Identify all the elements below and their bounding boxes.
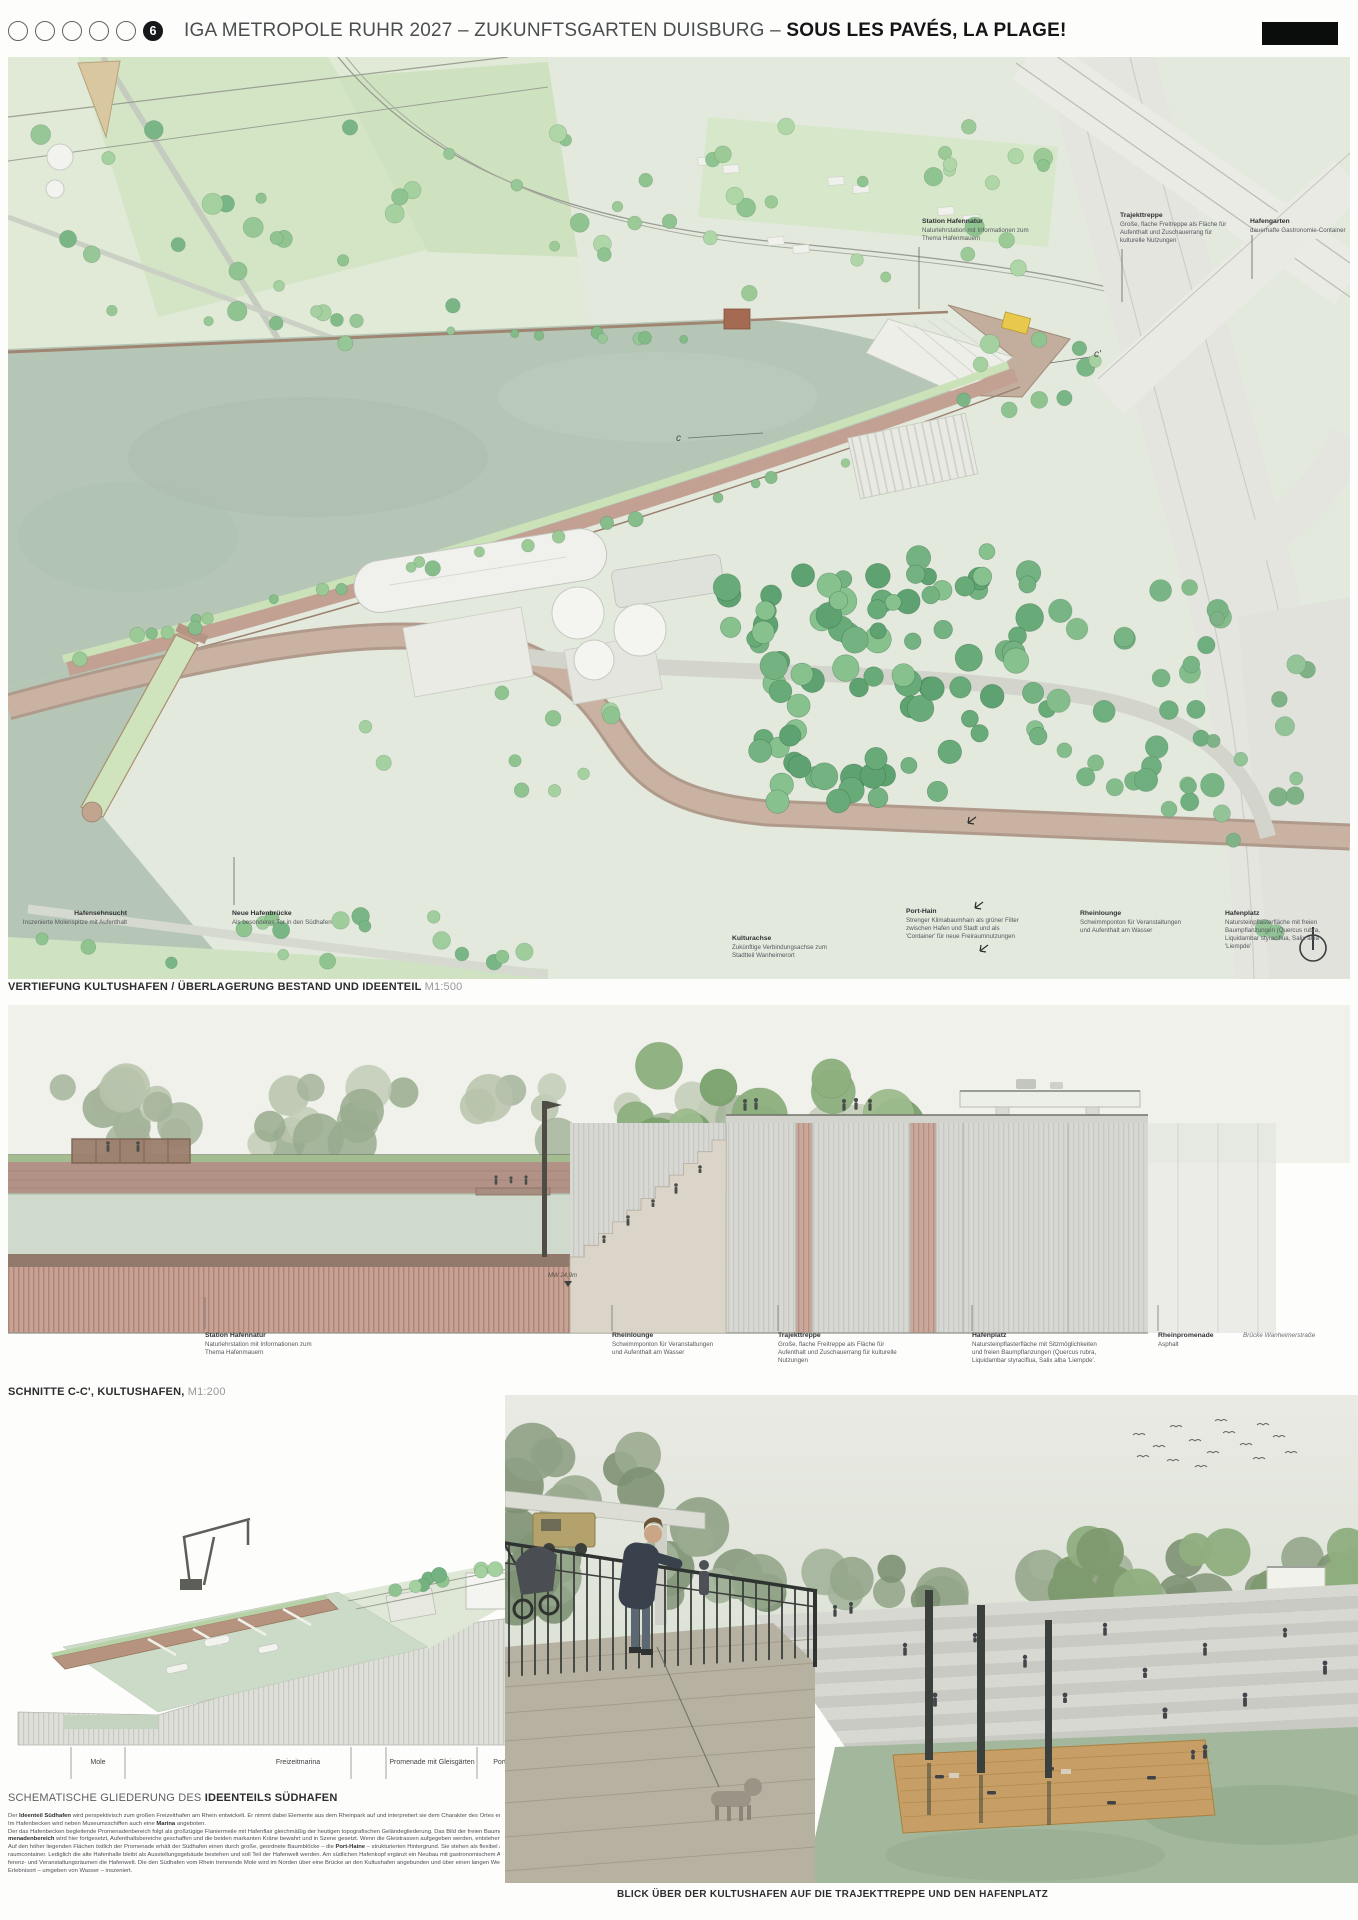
child-figure	[699, 1560, 709, 1595]
section-label-bruecke-wanheimerstrasse: Brücke Wanheimerstraße	[1243, 1332, 1351, 1340]
header: 6 IGA METROPOLE RUHR 2027 – ZUKUNFTSGART…	[8, 20, 1067, 42]
plan-label-kulturachse: KulturachseZukünftige Verbindungsachse z…	[732, 935, 848, 960]
board-title-regular: IGA METROPOLE RUHR 2027 – ZUKUNFTSGARTEN…	[184, 20, 786, 41]
plan-label-hafengarten: Hafengartendauerhafte Gastronomie-Contai…	[1250, 218, 1346, 235]
plan-label-port-hain: Port-HainStrenger Klimabaumhain als grün…	[906, 908, 1022, 941]
plan-label-trajekttreppe: TrajekttreppeGroße, flache Freitreppe al…	[1120, 212, 1228, 245]
section-label-trajekttreppe: TrajekttreppeGroße, flache Freitreppe al…	[778, 1332, 898, 1365]
water-level-label: MW 24,9m	[548, 1273, 577, 1279]
board-title: IGA METROPOLE RUHR 2027 – ZUKUNFTSGARTEN…	[184, 20, 1067, 42]
competition-board-page: 6 IGA METROPOLE RUHR 2027 – ZUKUNFTSGART…	[0, 0, 1358, 1920]
axon-zone-promenade: Promenade mit Gleisgärten	[389, 1759, 474, 1766]
site-plan: c c' Station HafennaturNaturlehrstation …	[8, 57, 1350, 979]
body-text: Der Ideenteil Südhafen wird perspektivis…	[8, 1813, 500, 1876]
board-title-bold: SOUS LES PAVÉS, LA PLAGE!	[786, 20, 1066, 41]
section-drawing-wrap: MW 24,9m Station HafennaturNaturlehrstat…	[8, 1005, 1350, 1380]
plan-label-neue-hafenbruecke: Neue HafenbrückeAls besonderes Tor in de…	[232, 910, 340, 927]
plan-label-hafensehnsucht: HafensehnsuchtInszenierte Molenspitze mi…	[22, 910, 127, 927]
plan-label-hafenplatz: HafenplatzNatursteinpflasterfläche mit f…	[1225, 910, 1337, 950]
section-label-station-hafennatur: Station HafennaturNaturlehrstation mit I…	[205, 1332, 313, 1357]
pagination-circle-1	[8, 21, 28, 41]
perspective-render-wrap	[505, 1395, 1358, 1883]
axon-drawing	[8, 1497, 538, 1787]
section-drawing: MW 24,9m	[8, 1005, 1350, 1337]
axon-caption: SCHEMATISCHE GLIEDERUNG DES IDEENTEILS S…	[8, 1792, 337, 1804]
axon-zone-freizeitmarina: Freizeitmarina	[276, 1759, 320, 1766]
plan-caption: VERTIEFUNG KULTUSHAFEN / ÜBERLAGERUNG BE…	[8, 981, 462, 993]
pagination-circle-3	[62, 21, 82, 41]
perspective-render	[505, 1395, 1358, 1883]
section-label-rheinlounge: RheinloungeSchwimmponton für Veranstaltu…	[612, 1332, 720, 1357]
site-plan-drawing: c c'	[8, 57, 1350, 979]
axon-drawing-wrap: Mole Freizeitmarina Promenade mit Gleisg…	[8, 1497, 538, 1787]
render-caption: BLICK ÜBER DER KULTUSHAFEN AUF DIE TRAJE…	[617, 1889, 1048, 1900]
section-marker-c-prime: c'	[1094, 349, 1102, 360]
section-label-hafenplatz: HafenplatzNatursteinpflasterfläche mit S…	[972, 1332, 1100, 1365]
axon-zone-mole: Mole	[90, 1759, 105, 1766]
plan-label-station-hafennatur: Station HafennaturNaturlehrstation mit I…	[922, 218, 1030, 243]
section-marker-c: c	[676, 433, 681, 444]
pagination-circle-2	[35, 21, 55, 41]
plan-label-rheinlounge: RheinloungeSchwimmponton für Veranstaltu…	[1080, 910, 1188, 935]
pagination-circle-5	[116, 21, 136, 41]
pagination-circle-active: 6	[143, 21, 163, 41]
header-black-box	[1262, 22, 1338, 45]
section-caption: SCHNITTE C-C', KULTUSHAFEN, M1:200	[8, 1386, 226, 1398]
pagination-circle-4	[89, 21, 109, 41]
